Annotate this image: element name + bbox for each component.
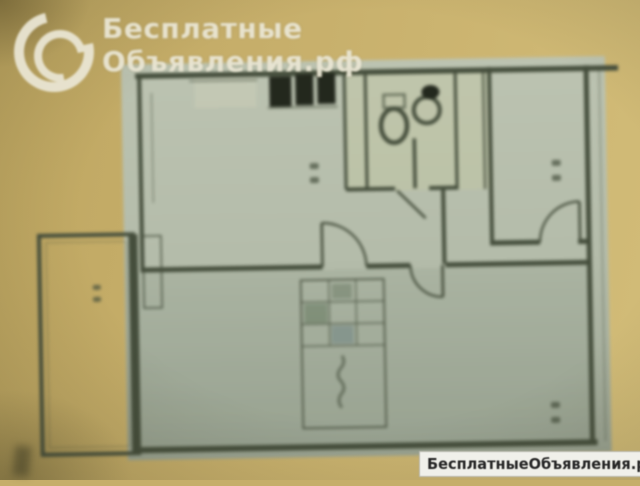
door-leaf-kitchen bbox=[579, 201, 580, 241]
floor-plan-photo: Бесплатные Объявления.рф БесплатныеОбъяв… bbox=[0, 0, 640, 480]
wall-bath-left-outer bbox=[344, 72, 346, 190]
balcony-outline bbox=[39, 234, 137, 455]
logo-text: Бесплатные Объявления.рф bbox=[102, 12, 364, 78]
swirl-crescents-icon bbox=[8, 4, 92, 88]
logo-line2: Объявления.рф bbox=[102, 45, 364, 78]
wall-kitchen-bottom-left bbox=[490, 242, 540, 243]
stamp-cell-blue bbox=[331, 325, 353, 343]
wall-mid-left bbox=[140, 267, 322, 270]
door-leaf-top-room bbox=[322, 223, 323, 267]
wall-bath-right bbox=[455, 70, 457, 190]
footer-watermark-text: БесплатныеОбъявления.рф bbox=[427, 455, 640, 473]
photo-dark-streak bbox=[12, 445, 31, 477]
wall-bath-bottom-left bbox=[346, 189, 395, 190]
footer-watermark: БесплатныеОбъявления.рф bbox=[419, 451, 640, 477]
wall-bath-divider bbox=[414, 138, 415, 188]
wall-left-lower-thick bbox=[133, 234, 137, 455]
wall-bath-left-inner bbox=[365, 71, 367, 189]
logo-watermark: Бесплатные Объявления.рф bbox=[8, 4, 364, 88]
stamp-cell-green bbox=[304, 304, 327, 323]
wall-mid-right bbox=[445, 262, 588, 264]
wall-mid-center bbox=[366, 265, 410, 266]
door-leaf-bottom-room bbox=[442, 265, 443, 297]
bottom-room-shade bbox=[139, 265, 592, 449]
wall-hall-vertical bbox=[443, 190, 444, 264]
closet-front-line bbox=[268, 107, 338, 108]
stamp-cell-dark bbox=[332, 283, 352, 298]
logo-line1: Бесплатные bbox=[102, 12, 364, 45]
